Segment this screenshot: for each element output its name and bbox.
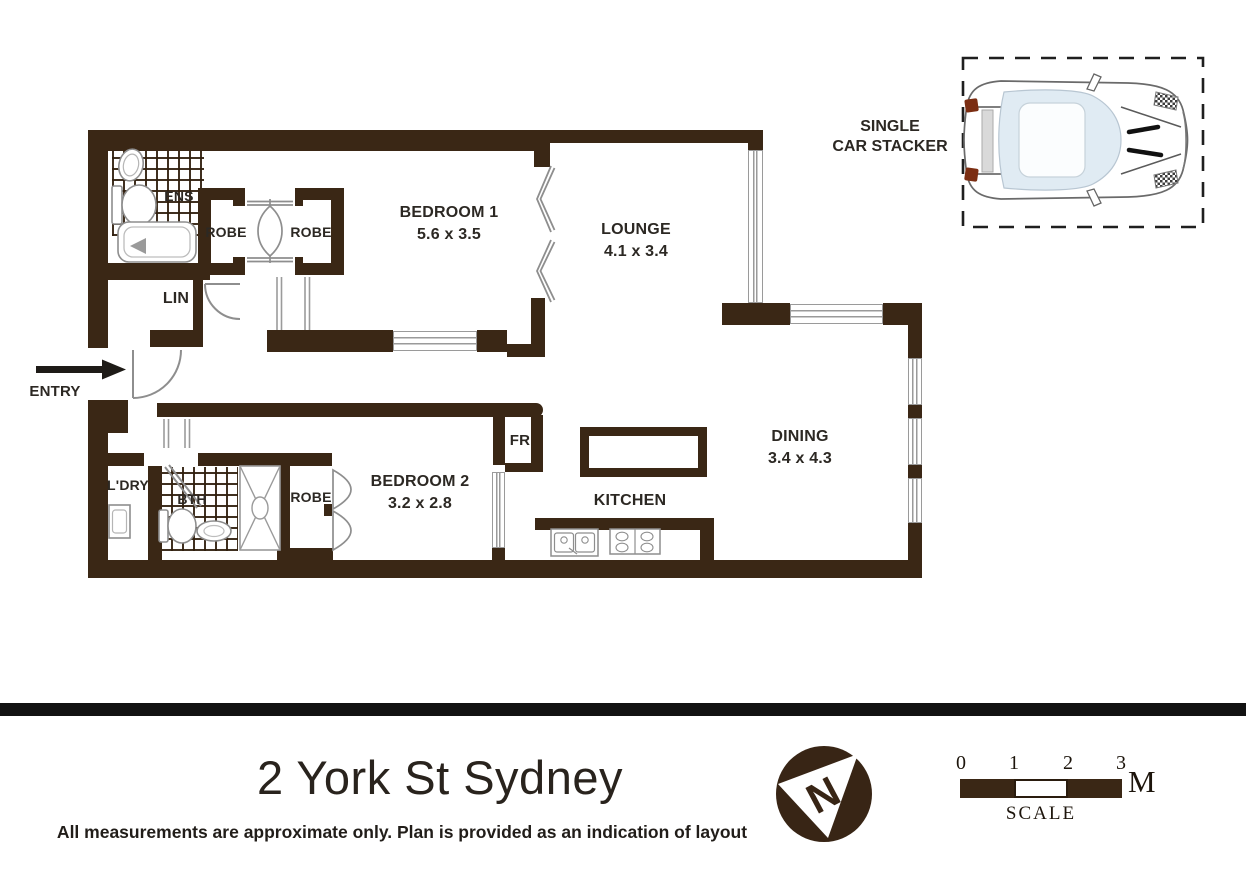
label-robe-right: ROBE (290, 224, 331, 240)
lounge-name: LOUNGE (601, 219, 671, 241)
kitchen-sink-icon (551, 529, 598, 556)
car-stacker-line1: SINGLE (832, 117, 947, 137)
section-divider (0, 703, 1246, 716)
bedroom2-name: BEDROOM 2 (371, 471, 470, 493)
scale-caption: SCALE (1006, 803, 1076, 825)
scale-bar: 0 1 2 3 M SCALE (0, 716, 1246, 881)
wall-segment (908, 523, 922, 560)
wall-segment (108, 453, 144, 466)
scale-unit: M (1128, 764, 1156, 800)
wall-segment (277, 548, 333, 560)
wall-segment (295, 200, 303, 206)
window (908, 418, 922, 465)
car-stacker-label: SINGLE CAR STACKER (832, 117, 947, 157)
wall-segment (233, 257, 245, 263)
wall-segment (908, 325, 922, 358)
wall-segment (535, 518, 713, 530)
wall-segment (277, 466, 290, 560)
label-bth: BTH (177, 491, 206, 507)
plan-symbols-layer (0, 0, 1246, 703)
car-icon (964, 74, 1188, 206)
wall-segment (908, 405, 922, 418)
room-label-dining: DINING 3.4 x 4.3 (768, 426, 832, 470)
wall-segment (533, 130, 763, 143)
window (492, 472, 505, 548)
window (790, 304, 883, 324)
label-robe2: ROBE (290, 489, 331, 505)
window (908, 478, 922, 523)
wall-segment (88, 400, 108, 578)
floorplan-page: ENS ROBE ROBE BEDROOM 1 5.6 x 3.5 LOUNGE… (0, 0, 1246, 881)
label-ldry: L'DRY (107, 477, 149, 493)
bedroom1-dims: 5.6 x 3.5 (400, 224, 499, 246)
wall-segment (267, 330, 393, 352)
wall-segment (507, 344, 545, 357)
label-robe-left: ROBE (205, 224, 246, 240)
wall-segment (88, 263, 210, 280)
wall-segment (150, 330, 203, 347)
wall-segment (883, 303, 922, 325)
wall-segment (88, 130, 108, 348)
car-stacker-bay-outline (963, 58, 1203, 227)
bathroom-tiled-floor (160, 467, 238, 551)
dining-name: DINING (768, 426, 832, 448)
floor-plan: ENS ROBE ROBE BEDROOM 1 5.6 x 3.5 LOUNGE… (0, 0, 1246, 703)
wall-segment (700, 518, 714, 560)
footer: 2 York St Sydney All measurements are ap… (0, 716, 1246, 881)
bedroom1-name: BEDROOM 1 (400, 202, 499, 224)
wall-segment (534, 143, 550, 167)
wall-segment (211, 263, 245, 275)
scale-segment-dark-2 (1068, 779, 1122, 798)
label-ens: ENS (164, 188, 193, 204)
label-entry: ENTRY (29, 383, 80, 400)
room-label-bedroom1: BEDROOM 1 5.6 x 3.5 (400, 202, 499, 246)
wall-segment (233, 200, 245, 206)
wall-segment (477, 330, 507, 352)
wall-segment (88, 130, 540, 151)
room-label-bedroom2: BEDROOM 2 3.2 x 2.8 (371, 471, 470, 515)
kitchen-island (580, 427, 707, 477)
robe2-doors-icon (333, 470, 351, 550)
room-label-lounge: LOUNGE 4.1 x 3.4 (601, 219, 671, 263)
wall-segment (722, 303, 790, 325)
label-lin: LIN (163, 290, 189, 308)
wall-segment (492, 548, 505, 562)
laundry-tub-icon (109, 505, 130, 538)
wall-segment (193, 280, 203, 332)
wall-segment (198, 453, 332, 466)
wall-segment (295, 257, 303, 263)
scale-bar-segments (960, 779, 1122, 798)
wall-segment (531, 415, 543, 472)
dining-dims: 3.4 x 4.3 (768, 448, 832, 470)
wall-segment (748, 130, 763, 152)
room-label-kitchen: KITCHEN (594, 492, 667, 510)
window (393, 331, 477, 351)
wall-segment (211, 188, 245, 200)
scale-tick-3: 3 (1116, 752, 1126, 775)
bedroom2-dims: 3.2 x 2.8 (371, 493, 470, 515)
wall-segment (88, 560, 922, 578)
label-fr: FR (510, 432, 530, 449)
scale-tick-2: 2 (1063, 752, 1073, 775)
wall-segment (324, 504, 332, 516)
scale-tick-0: 0 (956, 752, 966, 775)
window (908, 358, 922, 405)
scale-tick-1: 1 (1009, 752, 1019, 775)
wall-segment (148, 466, 162, 560)
wall-segment (331, 188, 344, 275)
cooktop-icon (610, 529, 660, 554)
entry-arrow-icon (36, 360, 126, 380)
wall-segment (493, 415, 505, 465)
scale-segment-dark-1 (960, 779, 1014, 798)
scale-segment-light (1014, 779, 1068, 798)
casement-window-icons (537, 166, 555, 302)
lounge-dims: 4.1 x 3.4 (601, 241, 671, 263)
wall-segment (908, 465, 922, 478)
car-stacker-line2: CAR STACKER (832, 137, 947, 157)
robe-sliding-doors-icon (247, 199, 293, 263)
wall-segment (157, 403, 543, 417)
wall-segment (295, 188, 331, 200)
window (748, 150, 763, 303)
wall-segment (295, 263, 331, 275)
